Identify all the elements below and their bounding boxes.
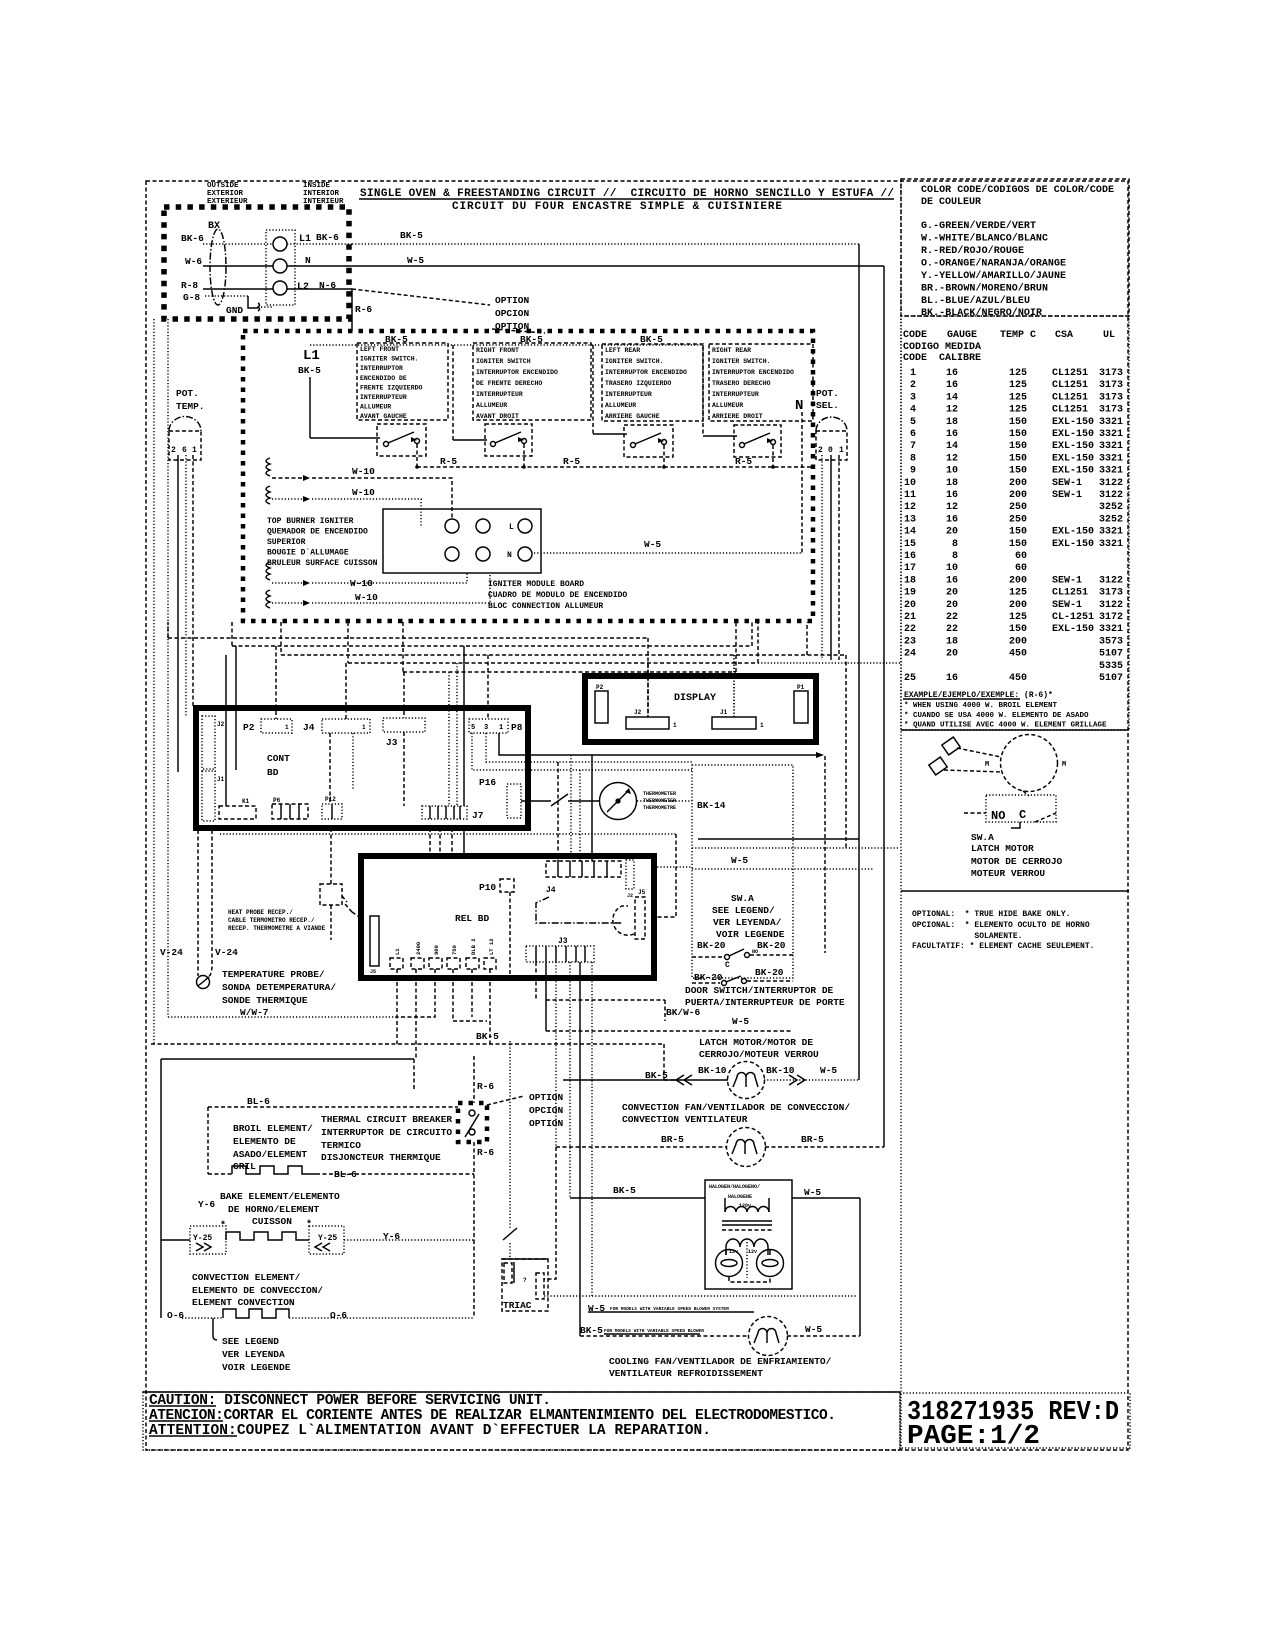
svg-text:BK-5: BK-5 [298, 365, 321, 376]
svg-text:ENCENDIDO DE: ENCENDIDO DE [360, 375, 407, 382]
svg-text:3321: 3321 [1099, 539, 1123, 550]
svg-text:9: 9 [904, 466, 916, 477]
svg-text:R-5: R-5 [735, 456, 752, 467]
svg-text:SEW-1: SEW-1 [1052, 490, 1082, 501]
svg-text:TERMICO: TERMICO [321, 1140, 361, 1151]
svg-text:K1: K1 [242, 798, 250, 805]
svg-text:VOIR LEGENDE: VOIR LEGENDE [222, 1362, 291, 1373]
svg-text:P8: P8 [511, 722, 523, 733]
svg-text:3: 3 [904, 392, 916, 403]
svg-text:TRIAC: TRIAC [503, 1300, 532, 1311]
svg-text:11: 11 [904, 490, 916, 501]
svg-text:ARRIERE DROIT: ARRIERE DROIT [712, 413, 763, 420]
svg-text:18: 18 [904, 575, 916, 586]
svg-text:BX: BX [208, 221, 220, 232]
svg-text:25: 25 [904, 673, 916, 684]
svg-text:J2: J2 [217, 721, 225, 728]
svg-text:CONVECTION FAN/VENTILADOR DE C: CONVECTION FAN/VENTILADOR DE CONVECCION/ [622, 1102, 850, 1113]
svg-text:15: 15 [904, 539, 916, 550]
svg-text:3: 3 [484, 724, 488, 732]
svg-text:EXL-150: EXL-150 [1052, 429, 1094, 440]
svg-text:5: 5 [904, 417, 916, 428]
svg-text:N: N [507, 551, 512, 560]
svg-text:3321: 3321 [1099, 441, 1123, 452]
svg-text:RIGHT REAR: RIGHT REAR [712, 347, 751, 354]
svg-text:CSA: CSA [1055, 330, 1073, 341]
svg-text:125: 125 [1009, 380, 1027, 391]
svg-text:CIRCUIT DU FOUR ENCASTRE SIMPL: CIRCUIT DU FOUR ENCASTRE SIMPLE & CUISIN… [452, 201, 782, 213]
svg-text:BK-5: BK-5 [580, 1325, 603, 1336]
svg-text:INTERRUPTEUR: INTERRUPTEUR [360, 394, 407, 401]
svg-text:J5: J5 [370, 969, 376, 975]
svg-text:INSIDE: INSIDE [303, 182, 331, 190]
svg-text:16: 16 [946, 429, 958, 440]
svg-text:DISPLAY: DISPLAY [674, 693, 716, 704]
svg-text:SONDE THERMIQUE: SONDE THERMIQUE [222, 995, 308, 1006]
svg-text:INTERIOR: INTERIOR [303, 190, 340, 198]
svg-text:R-6: R-6 [477, 1147, 494, 1158]
svg-text:VER LEYENDA/: VER LEYENDA/ [713, 917, 782, 928]
svg-text:8: 8 [952, 551, 958, 562]
svg-text:P16: P16 [479, 777, 496, 788]
svg-text:CODE: CODE [903, 330, 927, 341]
svg-text:ARRIERE GAUCHE: ARRIERE GAUCHE [605, 413, 660, 420]
svg-text:0: 0 [828, 446, 833, 455]
svg-text:ALLUMEUR: ALLUMEUR [712, 402, 743, 409]
svg-text:W-5: W-5 [820, 1065, 837, 1076]
svg-text:DE FRENTE DERECHO: DE FRENTE DERECHO [476, 380, 542, 387]
svg-text:J1: J1 [217, 776, 225, 783]
svg-text:BK-20: BK-20 [757, 940, 786, 951]
svg-text:J4: J4 [546, 886, 556, 895]
svg-text:200: 200 [1009, 490, 1027, 501]
svg-text:HALOGEN/HALOGENO/: HALOGEN/HALOGENO/ [709, 1184, 760, 1190]
svg-text:6: 6 [904, 429, 916, 440]
svg-text:20: 20 [946, 600, 958, 611]
svg-text:BR.-BROWN/MORENO/BRUN: BR.-BROWN/MORENO/BRUN [921, 283, 1048, 295]
svg-text:* WHEN USING 4000 W. BROIL ELE: * WHEN USING 4000 W. BROIL ELEMENT [904, 702, 1058, 710]
svg-text:AVANT GAUCHE: AVANT GAUCHE [360, 413, 407, 420]
svg-text:SEW-1: SEW-1 [1052, 575, 1082, 586]
svg-text:CABLE TERMOMETRO RECEP./: CABLE TERMOMETRO RECEP./ [228, 917, 315, 924]
svg-text:TRASERO DERECHO: TRASERO DERECHO [712, 380, 771, 387]
svg-text:1: 1 [362, 724, 366, 731]
svg-text:FRENTE IZQUIERDO: FRENTE IZQUIERDO [360, 384, 423, 391]
svg-text:17: 17 [904, 563, 916, 574]
svg-text:O.-ORANGE/NARANJA/ORANGE: O.-ORANGE/NARANJA/ORANGE [921, 258, 1066, 270]
svg-text:FOR MODELS WITH VARIABLE SPEED: FOR MODELS WITH VARIABLE SPEED BLOWER [604, 1328, 704, 1334]
svg-text:250: 250 [1009, 502, 1027, 513]
svg-text:Y-25: Y-25 [193, 1234, 212, 1243]
svg-text:450: 450 [1009, 673, 1027, 684]
svg-text:ALLUMEUR: ALLUMEUR [476, 402, 507, 409]
svg-text:21: 21 [904, 612, 916, 623]
svg-text:14: 14 [946, 392, 958, 403]
svg-text:BL.-BLUE/AZUL/BLEU: BL.-BLUE/AZUL/BLEU [921, 295, 1030, 307]
svg-text:BK-5: BK-5 [476, 1031, 499, 1042]
svg-text:1: 1 [192, 446, 197, 455]
svg-text:CL1251: CL1251 [1052, 588, 1088, 599]
svg-text:HEAT PROBE RECEP./: HEAT PROBE RECEP./ [228, 909, 293, 916]
svg-text:3172: 3172 [1099, 612, 1123, 623]
svg-text:BK-10: BK-10 [698, 1065, 727, 1076]
svg-text:L1: L1 [303, 348, 320, 364]
svg-text:16: 16 [946, 575, 958, 586]
svg-text:125: 125 [1009, 392, 1027, 403]
svg-text:22: 22 [946, 612, 958, 623]
svg-text:DE HORNO/ELEMENT: DE HORNO/ELEMENT [228, 1204, 320, 1215]
svg-text:CL1251: CL1251 [1052, 380, 1088, 391]
svg-text:450: 450 [1009, 649, 1027, 660]
svg-text:OPTIONAL: * TRUE HIDE BAKE ON: OPTIONAL: * TRUE HIDE BAKE ONLY. [912, 910, 1070, 919]
svg-text:INTERRUPTOR DE CIRCUITO: INTERRUPTOR DE CIRCUITO [321, 1127, 452, 1138]
svg-text:BAKE ELEMENT/ELEMENTO: BAKE ELEMENT/ELEMENTO [220, 1191, 340, 1202]
svg-text:CONVECTION ELEMENT/: CONVECTION ELEMENT/ [192, 1272, 301, 1283]
svg-text:150: 150 [1009, 539, 1027, 550]
svg-text:INTERRUPTEUR: INTERRUPTEUR [476, 391, 523, 398]
svg-text:60: 60 [1015, 551, 1027, 562]
svg-text:J7: J7 [472, 810, 484, 821]
svg-text:R.-RED/ROJO/ROUGE: R.-RED/ROJO/ROUGE [921, 245, 1024, 257]
svg-text:O-6: O-6 [167, 1310, 184, 1321]
svg-text:UL: UL [1103, 330, 1115, 341]
svg-text:R-8: R-8 [181, 280, 198, 291]
svg-text:ALLUMEUR: ALLUMEUR [360, 404, 391, 411]
svg-text:CERROJO/MOTEUR VERROU: CERROJO/MOTEUR VERROU [699, 1049, 819, 1060]
svg-text:N: N [305, 255, 311, 266]
svg-text:VER LEYENDA: VER LEYENDA [222, 1349, 285, 1360]
svg-text:REL BD: REL BD [455, 913, 490, 924]
svg-text:DE COULEUR: DE COULEUR [921, 197, 981, 208]
svg-text:LATCH MOTOR: LATCH MOTOR [971, 843, 1034, 854]
svg-text:CL-1251: CL-1251 [1052, 612, 1094, 623]
svg-text:EXL-150: EXL-150 [1052, 441, 1094, 452]
svg-text:J4: J4 [303, 722, 315, 733]
svg-text:Y.-YELLOW/AMARILLO/JAUNE: Y.-YELLOW/AMARILLO/JAUNE [921, 270, 1066, 282]
svg-text:5: 5 [471, 724, 475, 732]
svg-text:BK-20: BK-20 [697, 940, 726, 951]
svg-text:TOP BURNER IGNITER: TOP BURNER IGNITER [267, 517, 354, 526]
svg-text:SW.A: SW.A [971, 832, 994, 843]
svg-text:P2: P2 [243, 722, 255, 733]
svg-text:W-10: W-10 [352, 487, 375, 498]
svg-text:INTERRUPTEUR: INTERRUPTEUR [605, 391, 652, 398]
svg-text:1: 1 [285, 724, 289, 731]
svg-text:BK-14: BK-14 [697, 800, 726, 811]
svg-text:SEW-1: SEW-1 [1052, 478, 1082, 489]
svg-text:8: 8 [952, 539, 958, 550]
svg-text:3173: 3173 [1099, 392, 1123, 403]
svg-text:SEW-1: SEW-1 [1052, 600, 1082, 611]
svg-text:2: 2 [171, 446, 176, 455]
svg-text:BRULEUR SURFACE CUISSON: BRULEUR SURFACE CUISSON [267, 559, 378, 568]
svg-text:FOR MODELS WITH VARIABLE SPEED: FOR MODELS WITH VARIABLE SPEED BLOWER SY… [610, 1306, 729, 1312]
svg-text:L2: L2 [297, 282, 309, 293]
svg-text:16: 16 [946, 368, 958, 379]
svg-text:1: 1 [499, 724, 503, 732]
svg-text:R-5: R-5 [563, 456, 580, 467]
svg-text:18: 18 [946, 636, 958, 647]
svg-text:NO: NO [991, 809, 1005, 823]
svg-text:CONVECTION VENTILATEUR: CONVECTION VENTILATEUR [622, 1114, 748, 1125]
svg-text:EXTERIOR: EXTERIOR [207, 190, 244, 198]
svg-text:OPTION: OPTION [529, 1118, 564, 1129]
svg-text:TEMP.: TEMP. [176, 401, 205, 412]
svg-text:G.-GREEN/VERDE/VERT: G.-GREEN/VERDE/VERT [921, 220, 1036, 232]
svg-text:INTERRUPTOR ENCENDIDO: INTERRUPTOR ENCENDIDO [605, 369, 687, 376]
svg-text:P6: P6 [273, 797, 281, 804]
svg-text:3122: 3122 [1099, 478, 1123, 489]
svg-text:3321: 3321 [1099, 453, 1123, 464]
svg-text:SINGLE OVEN & FREESTANDING CIR: SINGLE OVEN & FREESTANDING CIRCUIT // CI… [360, 188, 894, 200]
svg-text:INTERRUPTOR ENCENDIDO: INTERRUPTOR ENCENDIDO [476, 369, 558, 376]
svg-text:OPCION: OPCION [529, 1105, 564, 1116]
svg-text:16: 16 [904, 551, 916, 562]
svg-text:150: 150 [1009, 624, 1027, 635]
svg-text:L1: L1 [394, 948, 401, 955]
svg-text:GND: GND [226, 305, 243, 316]
svg-text:BL-6: BL-6 [247, 1096, 270, 1107]
svg-text:EXL-150: EXL-150 [1052, 527, 1094, 538]
svg-text:3173: 3173 [1099, 368, 1123, 379]
svg-text:INTERRUPTOR ENCENDIDO: INTERRUPTOR ENCENDIDO [712, 369, 794, 376]
svg-text:1: 1 [904, 368, 916, 379]
svg-text:3321: 3321 [1099, 429, 1123, 440]
svg-text:12v: 12v [748, 1249, 757, 1255]
svg-text:20: 20 [946, 588, 958, 599]
svg-text:MOTOR DE CERROJO: MOTOR DE CERROJO [971, 856, 1063, 867]
svg-text:AVANT DROIT: AVANT DROIT [476, 413, 519, 420]
svg-text:BK/W-6: BK/W-6 [666, 1007, 701, 1018]
svg-text:14: 14 [946, 441, 958, 452]
svg-text:2400: 2400 [415, 942, 422, 955]
svg-text:2: 2 [818, 446, 823, 455]
svg-text:BROIL ELEMENT/: BROIL ELEMENT/ [233, 1123, 313, 1134]
svg-text:3173: 3173 [1099, 405, 1123, 416]
svg-text:OPCIONAL: * ELEMENTO OCULTO D: OPCIONAL: * ELEMENTO OCULTO DE HORNO [912, 921, 1090, 930]
svg-text:VOIR LEGENDE: VOIR LEGENDE [716, 929, 785, 940]
svg-text:14: 14 [904, 527, 916, 538]
svg-text:EXL-150: EXL-150 [1052, 417, 1094, 428]
svg-text:Y-25: Y-25 [318, 1234, 337, 1243]
svg-text:QUEMADOR DE ENCENDIDO: QUEMADOR DE ENCENDIDO [267, 528, 368, 537]
svg-text:R-6: R-6 [477, 1081, 494, 1092]
svg-text:G-8: G-8 [183, 292, 200, 303]
svg-text:SUPERIOR: SUPERIOR [267, 538, 306, 547]
svg-text:NO: NO [752, 949, 758, 955]
svg-text:IGNITER SWITCH.: IGNITER SWITCH. [360, 356, 419, 363]
svg-text:BK-6: BK-6 [316, 232, 339, 243]
svg-text:ASADO/ELEMENT: ASADO/ELEMENT [233, 1149, 307, 1160]
svg-text:4: 4 [904, 405, 916, 416]
svg-text:13: 13 [904, 514, 916, 525]
svg-text:BK-5: BK-5 [613, 1185, 636, 1196]
svg-text:125: 125 [1009, 368, 1027, 379]
svg-text:V-24: V-24 [160, 947, 183, 958]
svg-text:ELEMENT CONVECTION: ELEMENT CONVECTION [192, 1297, 295, 1308]
svg-text:22: 22 [904, 624, 916, 635]
svg-text:ATENCION:CORTAR EL CORIENTE AN: ATENCION:CORTAR EL CORIENTE ANTES DE REA… [149, 1408, 836, 1424]
svg-text:N: N [795, 398, 803, 414]
svg-text:P1: P1 [797, 684, 805, 691]
svg-text:OPCION: OPCION [495, 308, 530, 319]
svg-text:125: 125 [1009, 588, 1027, 599]
svg-text:BD: BD [267, 767, 279, 778]
svg-text:16: 16 [946, 490, 958, 501]
svg-text:P2: P2 [596, 684, 604, 691]
svg-text:3122: 3122 [1099, 600, 1123, 611]
svg-text:12: 12 [946, 502, 958, 513]
svg-text:19: 19 [904, 588, 916, 599]
svg-text:BK-20: BK-20 [694, 972, 723, 983]
svg-text:OUTSIDE: OUTSIDE [207, 182, 239, 190]
svg-text:BK-20: BK-20 [755, 967, 784, 978]
svg-text:DLB 2: DLB 2 [470, 938, 477, 955]
svg-text:DOOR SWITCH/INTERRUPTOR DE: DOOR SWITCH/INTERRUPTOR DE [685, 985, 834, 996]
svg-text:OPTION: OPTION [495, 295, 530, 306]
svg-text:BK-10: BK-10 [766, 1065, 795, 1076]
svg-text:OPTION: OPTION [529, 1092, 564, 1103]
svg-text:V-24: V-24 [215, 947, 238, 958]
svg-text:* CUANDO SE USA 4000 W. ELEMEN: * CUANDO SE USA 4000 W. ELEMENTO DE ASAD… [904, 712, 1089, 720]
svg-text:IGNITER MODULE BOARD: IGNITER MODULE BOARD [488, 580, 584, 589]
svg-text:W-5: W-5 [407, 255, 424, 266]
svg-text:J5: J5 [638, 889, 646, 896]
svg-text:24: 24 [904, 649, 916, 660]
svg-text:EXL-150: EXL-150 [1052, 539, 1094, 550]
svg-text:3321: 3321 [1099, 466, 1123, 477]
svg-text:200: 200 [1009, 636, 1027, 647]
svg-text:ALLUMEUR: ALLUMEUR [605, 402, 636, 409]
svg-text:10: 10 [946, 466, 958, 477]
svg-text:LEFT REAR: LEFT REAR [605, 347, 640, 354]
svg-text:SEE LEGEND: SEE LEGEND [222, 1336, 279, 1347]
svg-text:RIGHT FRONT: RIGHT FRONT [476, 347, 519, 354]
svg-text:150: 150 [1009, 466, 1027, 477]
svg-text:IGNITER SWITCH.: IGNITER SWITCH. [712, 358, 771, 365]
svg-text:W-5: W-5 [804, 1187, 821, 1198]
svg-text:SEE LEGEND/: SEE LEGEND/ [712, 905, 775, 916]
svg-text:TEMPERATURE PROBE/: TEMPERATURE PROBE/ [222, 969, 325, 980]
svg-text:16: 16 [946, 514, 958, 525]
svg-text:200: 200 [1009, 575, 1027, 586]
svg-text:BR-5: BR-5 [801, 1134, 824, 1145]
svg-text:3173: 3173 [1099, 588, 1123, 599]
svg-text:INTERRUPTEUR: INTERRUPTEUR [712, 391, 759, 398]
svg-text:IGNITER SWITCH.: IGNITER SWITCH. [605, 358, 664, 365]
svg-text:CODIGO MEDIDA: CODIGO MEDIDA [903, 342, 981, 353]
svg-text:CL1251: CL1251 [1052, 405, 1088, 416]
svg-text:BR-5: BR-5 [661, 1134, 684, 1145]
svg-text:1: 1 [839, 446, 844, 455]
svg-text:R-5: R-5 [440, 456, 457, 467]
svg-text:W-10: W-10 [352, 466, 375, 477]
svg-text:W-5: W-5 [644, 539, 661, 550]
svg-text:J2: J2 [627, 893, 633, 899]
svg-text:125: 125 [1009, 405, 1027, 416]
svg-text:CL1251: CL1251 [1052, 392, 1088, 403]
svg-text:LEFT FRONT: LEFT FRONT [360, 346, 399, 353]
svg-text:3573: 3573 [1099, 636, 1123, 647]
svg-text:J2: J2 [634, 709, 642, 716]
svg-text:TRASERO IZQUIERDO: TRASERO IZQUIERDO [605, 380, 671, 387]
svg-text:CL1251: CL1251 [1052, 368, 1088, 379]
svg-text:BK.-BLACK/NEGRO/NOIR: BK.-BLACK/NEGRO/NOIR [921, 307, 1042, 319]
svg-text:DISJONCTEUR THERMIQUE: DISJONCTEUR THERMIQUE [321, 1152, 441, 1163]
svg-text:22: 22 [946, 624, 958, 635]
svg-text:20: 20 [946, 649, 958, 660]
svg-text:3252: 3252 [1099, 514, 1123, 525]
svg-text:W-6: W-6 [185, 256, 202, 267]
svg-text:BK-6: BK-6 [181, 233, 204, 244]
svg-text:EXL-150: EXL-150 [1052, 453, 1094, 464]
svg-text:BLOC CONNECTION ALLUMEUR: BLOC CONNECTION ALLUMEUR [488, 602, 603, 611]
svg-text:INTERRUPTOR: INTERRUPTOR [360, 365, 403, 372]
svg-text:900: 900 [433, 945, 440, 955]
svg-text:J3: J3 [386, 737, 398, 748]
svg-text:CODE CALIBRE: CODE CALIBRE [903, 353, 981, 364]
svg-text:BOUGIE D`ALLUMAGE: BOUGIE D`ALLUMAGE [267, 549, 349, 558]
svg-text:THERMAL CIRCUIT BREAKER: THERMAL CIRCUIT BREAKER [321, 1114, 452, 1125]
svg-text:ELEMENTO DE CONVECCION/: ELEMENTO DE CONVECCION/ [192, 1285, 323, 1296]
svg-text:COOLING FAN/VENTILADOR DE ENFR: COOLING FAN/VENTILADOR DE ENFRIAMIENTO/ [609, 1356, 832, 1367]
svg-text:250: 250 [1009, 514, 1027, 525]
svg-text:SW.A: SW.A [731, 893, 754, 904]
svg-text:7: 7 [904, 441, 916, 452]
svg-text:PUERTA/INTERRUPTEUR DE PORTE: PUERTA/INTERRUPTEUR DE PORTE [685, 997, 845, 1008]
svg-text:M: M [985, 761, 989, 769]
svg-text:3173: 3173 [1099, 380, 1123, 391]
svg-text:TEMP C: TEMP C [1000, 330, 1036, 341]
svg-text:W.-WHITE/BLANCO/BLANC: W.-WHITE/BLANCO/BLANC [921, 233, 1048, 245]
svg-text:FACULTATIF: * ELEMENT CACHE SE: FACULTATIF: * ELEMENT CACHE SEULEMENT. [912, 942, 1094, 951]
svg-text:18: 18 [946, 478, 958, 489]
svg-text:W-5: W-5 [731, 855, 748, 866]
svg-text:J1: J1 [720, 709, 728, 716]
svg-text:W-5: W-5 [805, 1324, 822, 1335]
svg-text:150: 150 [1009, 417, 1027, 428]
svg-text:POT.: POT. [816, 388, 839, 399]
svg-text:8: 8 [904, 453, 916, 464]
svg-text:60: 60 [1015, 563, 1027, 574]
svg-text:3321: 3321 [1099, 527, 1123, 538]
svg-text:16: 16 [946, 673, 958, 684]
svg-text:C: C [725, 961, 730, 970]
svg-text:COLOR CODE/CODIGOS DE COLOR/CO: COLOR CODE/CODIGOS DE COLOR/CODE [921, 184, 1114, 196]
svg-text:750: 750 [451, 945, 458, 955]
svg-text:BK-5: BK-5 [400, 230, 423, 241]
svg-text:?: ? [523, 1277, 527, 1284]
svg-text:W-10: W-10 [355, 592, 378, 603]
svg-text:5107: 5107 [1099, 649, 1123, 660]
svg-text:5335: 5335 [1099, 661, 1123, 672]
svg-text:Y-6: Y-6 [198, 1199, 215, 1210]
svg-text:23: 23 [904, 636, 916, 647]
svg-text:P10: P10 [479, 882, 496, 893]
svg-text:200: 200 [1009, 478, 1027, 489]
svg-text:3122: 3122 [1099, 490, 1123, 501]
svg-text:CUADRO DE MODULO DE ENCENDIDO: CUADRO DE MODULO DE ENCENDIDO [488, 591, 627, 600]
svg-text:GAUGE: GAUGE [947, 330, 977, 341]
svg-text:12: 12 [946, 405, 958, 416]
svg-text:10: 10 [946, 563, 958, 574]
svg-text:5107: 5107 [1099, 673, 1123, 684]
svg-text:C: C [1019, 808, 1026, 822]
svg-text:2: 2 [904, 380, 916, 391]
svg-text:150: 150 [1009, 527, 1027, 538]
svg-text:20: 20 [946, 527, 958, 538]
svg-text:16: 16 [946, 380, 958, 391]
